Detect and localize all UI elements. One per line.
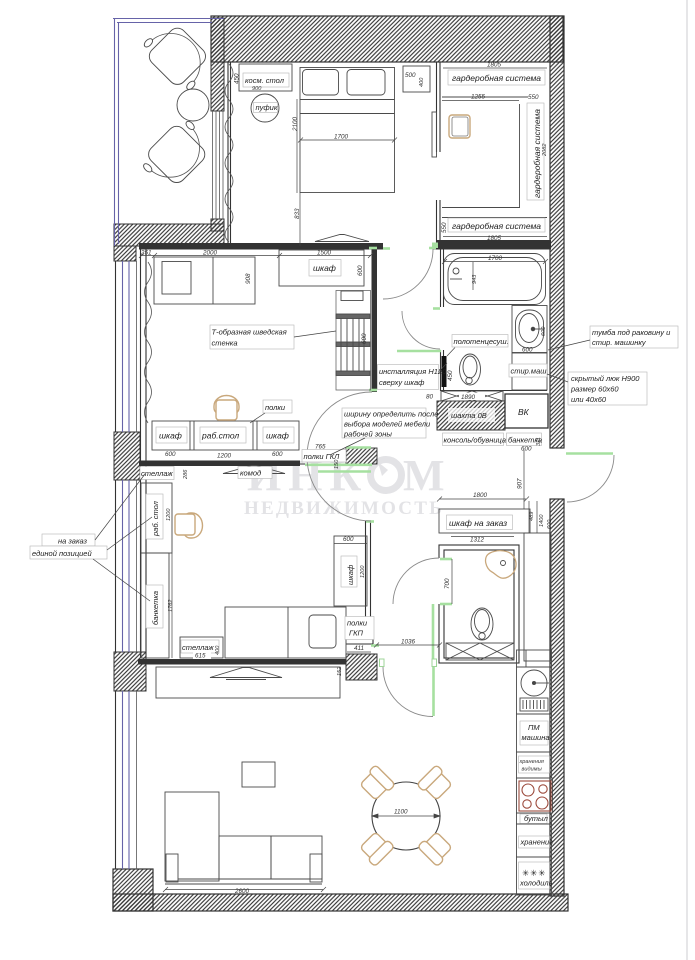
svg-text:комод: комод — [240, 469, 261, 478]
svg-text:раб. стол: раб. стол — [151, 500, 160, 537]
svg-text:единой позицией: единой позицией — [32, 549, 92, 558]
svg-text:1255: 1255 — [471, 94, 486, 101]
svg-text:полки: полки — [347, 619, 368, 628]
svg-text:600: 600 — [165, 451, 176, 458]
svg-text:400: 400 — [215, 645, 221, 655]
svg-text:311: 311 — [536, 437, 542, 446]
svg-text:2600: 2600 — [234, 888, 250, 895]
svg-text:1800: 1800 — [473, 492, 488, 499]
svg-text:или 40х60: или 40х60 — [571, 395, 607, 404]
svg-text:286: 286 — [183, 469, 189, 480]
svg-text:2100: 2100 — [292, 116, 299, 132]
svg-text:615: 615 — [195, 653, 206, 660]
svg-text:гардеробная система: гардеробная система — [452, 73, 541, 83]
svg-text:шахта 0В: шахта 0В — [451, 411, 487, 420]
svg-text:1200: 1200 — [360, 565, 366, 578]
svg-text:ГКП: ГКП — [349, 629, 363, 638]
svg-text:хранение: хранение — [520, 838, 554, 847]
svg-text:400: 400 — [419, 77, 425, 87]
svg-text:1200: 1200 — [217, 453, 232, 460]
svg-text:600: 600 — [343, 536, 354, 543]
svg-text:1500: 1500 — [317, 250, 332, 257]
svg-text:ВК: ВК — [518, 407, 530, 417]
svg-text:550: 550 — [441, 222, 448, 233]
svg-text:размер 60х60: размер 60х60 — [570, 385, 619, 394]
svg-text:1700: 1700 — [334, 134, 349, 141]
svg-text:шкаф: шкаф — [346, 564, 355, 585]
svg-text:80: 80 — [426, 394, 434, 401]
svg-text:М: М — [403, 451, 445, 500]
svg-text:1200: 1200 — [166, 508, 172, 521]
svg-text:видимы: видимы — [522, 767, 542, 773]
svg-text:хранения: хранения — [519, 759, 544, 765]
svg-text:гардеробная система: гардеробная система — [452, 221, 541, 231]
svg-text:полотенцесуш.: полотенцесуш. — [454, 337, 509, 346]
svg-text:2082: 2082 — [542, 143, 548, 157]
svg-text:ПМ: ПМ — [528, 723, 540, 732]
svg-text:500: 500 — [405, 72, 416, 79]
svg-text:1100: 1100 — [394, 809, 408, 816]
svg-text:косм. стол: косм. стол — [245, 76, 285, 85]
svg-text:600: 600 — [521, 446, 532, 453]
svg-text:гардеробная система: гардеробная система — [532, 109, 542, 198]
svg-text:1890: 1890 — [461, 394, 476, 401]
svg-text:1805: 1805 — [487, 235, 502, 242]
svg-text:251: 251 — [140, 250, 152, 257]
svg-text:907: 907 — [517, 478, 524, 489]
svg-text:пуфик: пуфик — [256, 103, 278, 112]
svg-text:инсталляция Н120: инсталляция Н120 — [379, 367, 447, 376]
svg-text:600: 600 — [541, 326, 547, 336]
svg-text:550: 550 — [528, 94, 539, 101]
svg-text:1762: 1762 — [168, 599, 174, 612]
svg-text:полки ГКЛ: полки ГКЛ — [304, 452, 341, 461]
svg-text:консоль/обувница: консоль/обувница — [444, 436, 507, 445]
svg-text:600: 600 — [272, 451, 283, 458]
svg-text:выбора моделей мебели: выбора моделей мебели — [344, 420, 431, 429]
svg-text:900: 900 — [252, 86, 262, 92]
svg-text:2000: 2000 — [202, 250, 218, 257]
svg-text:600: 600 — [361, 333, 368, 344]
svg-text:полки: полки — [265, 403, 286, 412]
svg-text:411: 411 — [354, 645, 364, 652]
svg-text:1700: 1700 — [488, 255, 503, 262]
svg-text:машина: машина — [522, 733, 550, 742]
svg-text:холодиль: холодиль — [519, 879, 553, 888]
svg-text:рабочей зоны: рабочей зоны — [343, 430, 392, 439]
svg-text:600: 600 — [522, 347, 533, 354]
svg-text:450: 450 — [234, 73, 241, 84]
svg-text:тумба под раковину и: тумба под раковину и — [592, 328, 671, 337]
svg-text:908: 908 — [245, 273, 252, 284]
svg-text:стир.маш: стир.маш — [511, 367, 548, 376]
svg-text:шкаф: шкаф — [266, 431, 289, 441]
svg-text:НЕДВИЖИМОСТЬ: НЕДВИЖИМОСТЬ — [244, 498, 444, 519]
svg-text:1312: 1312 — [470, 537, 485, 544]
svg-text:скрытый люк Н900: скрытый люк Н900 — [571, 374, 640, 383]
svg-text:✳✳✳: ✳✳✳ — [522, 868, 546, 878]
svg-text:1400: 1400 — [539, 514, 545, 527]
svg-text:стеллаж: стеллаж — [182, 643, 215, 652]
svg-text:Т-образная шведская: Т-образная шведская — [212, 328, 287, 337]
svg-text:700: 700 — [444, 578, 451, 589]
svg-text:1036: 1036 — [401, 639, 416, 646]
svg-text:шкаф: шкаф — [313, 263, 336, 273]
svg-text:стеллаж: стеллаж — [141, 469, 174, 478]
svg-text:банкетка: банкетка — [151, 591, 160, 625]
svg-text:450: 450 — [447, 370, 454, 381]
svg-text:шкаф на заказ: шкаф на заказ — [449, 518, 507, 528]
svg-text:стенка: стенка — [212, 339, 238, 348]
svg-text:150: 150 — [334, 459, 340, 469]
svg-text:489: 489 — [529, 512, 535, 521]
svg-text:600: 600 — [547, 519, 553, 529]
svg-text:бутыл: бутыл — [524, 814, 549, 823]
svg-text:1805: 1805 — [487, 62, 502, 69]
svg-text:600: 600 — [357, 265, 364, 276]
svg-text:шкаф: шкаф — [159, 431, 182, 441]
svg-text:на заказ: на заказ — [58, 537, 88, 546]
svg-text:раб.стол: раб.стол — [201, 431, 239, 441]
svg-text:стир. машинку: стир. машинку — [592, 338, 647, 347]
svg-text:сверху шкаф: сверху шкаф — [379, 378, 425, 387]
svg-text:ширину определить после: ширину определить после — [344, 410, 438, 419]
